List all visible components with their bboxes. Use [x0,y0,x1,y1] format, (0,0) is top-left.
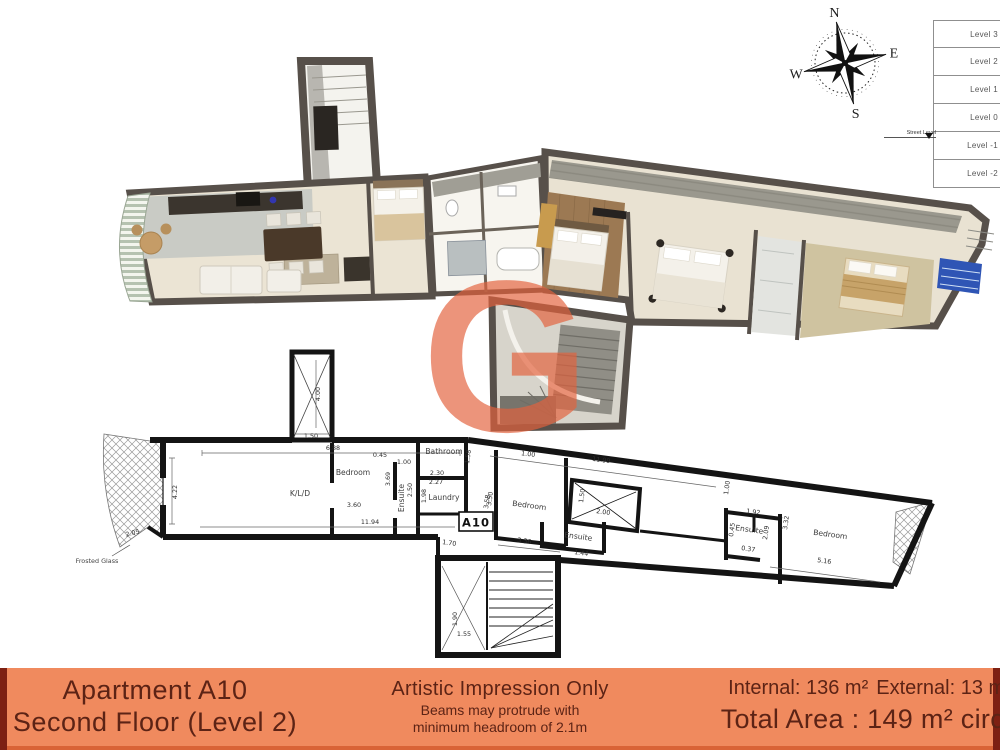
level-box-1[interactable]: Level 1 [933,76,1000,104]
level-label-minus2: Level -2 [967,169,998,178]
level-label-0: Level 0 [970,113,998,122]
level-label-minus1: Level -1 [967,141,998,150]
level-box-3[interactable]: Level 3 [933,20,1000,48]
apartment-info: Apartment A10 Second Floor (Level 2) [0,668,335,750]
level-label-3: Level 3 [970,30,998,39]
level-box-2[interactable]: Level 2 [933,48,1000,76]
footer-banner: Apartment A10 Second Floor (Level 2) Art… [0,668,1000,750]
area-summary: Internal: 136 m²External: 13 m² Total Ar… [700,668,1000,750]
compass-north: N [829,6,839,21]
level-box-0[interactable]: Level 0 [933,104,1000,132]
total-area: Total Area : 149 m² circa [700,702,1000,736]
level-box-minus2[interactable]: Level -2 [933,160,1000,188]
disclaimer-line2: minimum headroom of 2.1m [350,719,650,736]
apartment-subtitle: Second Floor (Level 2) [0,706,335,738]
compass-south: S [852,107,860,122]
internal-area: Internal: 136 m² [728,677,868,699]
disclaimer-line1: Beams may protrude with [350,702,650,719]
level-panel: Level 3 Level 2 Level 1 Level 0 Level -1… [933,20,1000,188]
compass-west: W [789,67,803,82]
apartment-title: Apartment A10 [0,674,335,706]
compass-east: E [890,47,899,62]
disclaimer: Artistic Impression Only Beams may protr… [350,668,650,750]
compass-rose: N E S W [0,0,1000,750]
disclaimer-title: Artistic Impression Only [350,676,650,702]
level-box-minus1[interactable]: Level -1 [933,132,1000,160]
level-label-1: Level 1 [970,85,998,94]
street-level-arrow-icon [925,133,933,139]
external-area: External: 13 m² [876,677,1000,699]
level-label-2: Level 2 [970,57,998,66]
floorplan-page: G [0,0,1000,750]
